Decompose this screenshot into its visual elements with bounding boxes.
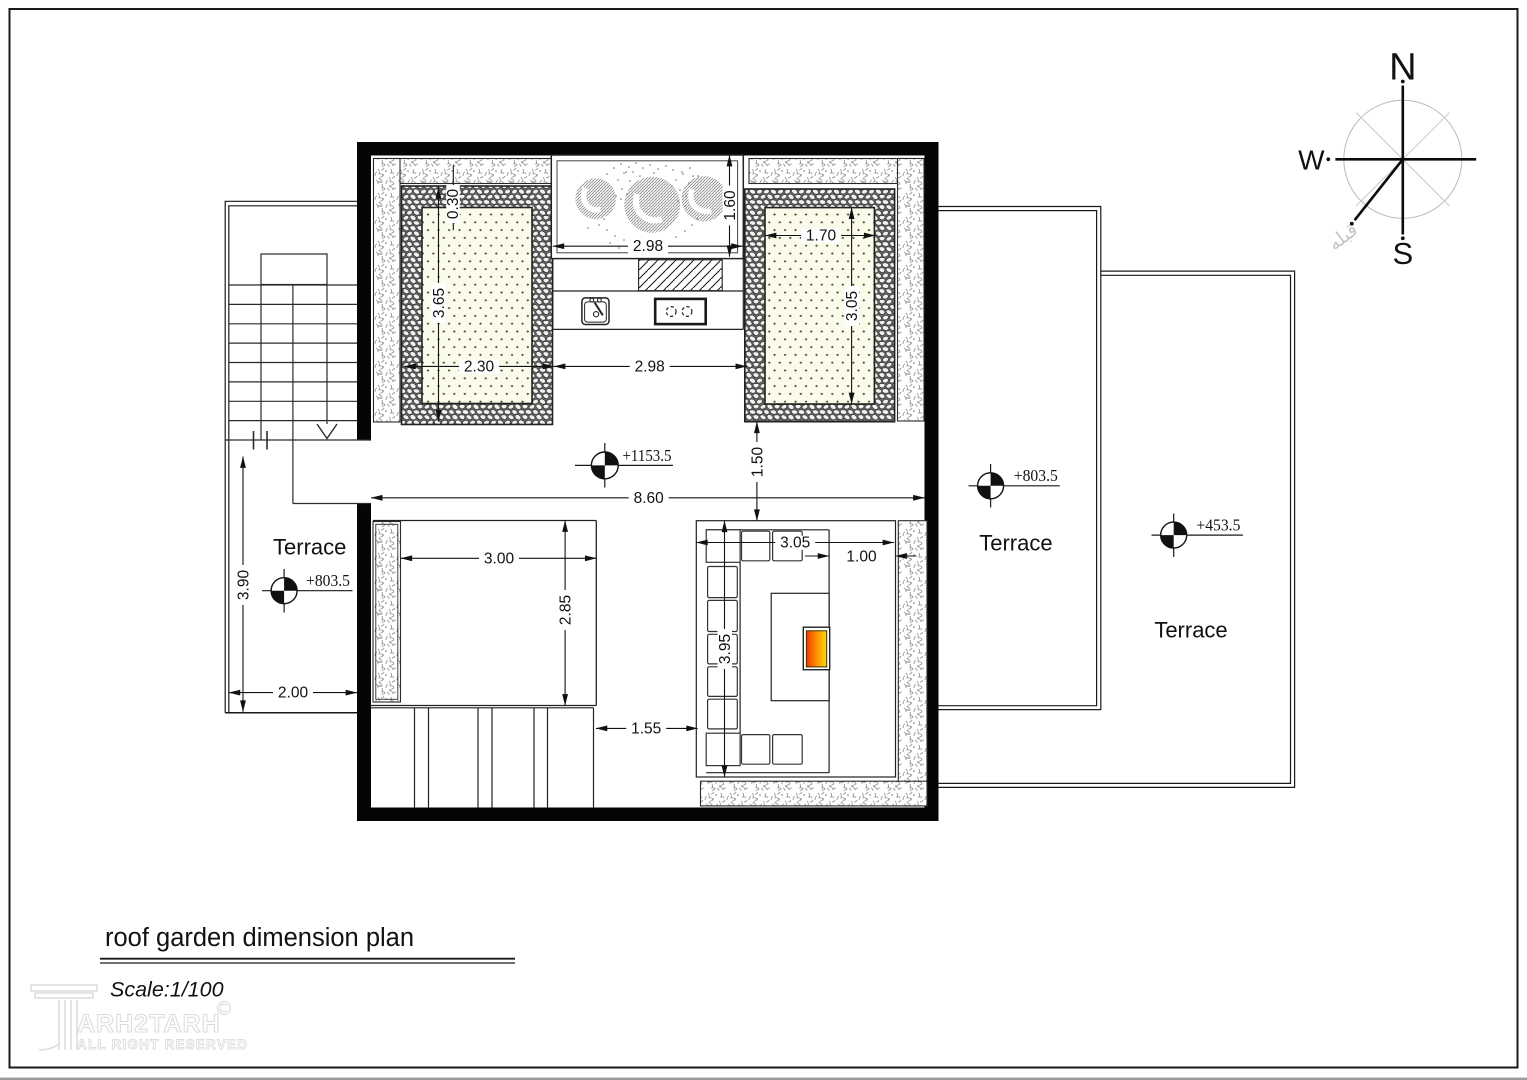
svg-text:Terrace: Terrace (1154, 618, 1227, 643)
svg-text:+1153.5: +1153.5 (623, 446, 672, 465)
svg-text:2.98: 2.98 (635, 358, 665, 375)
svg-text:3.65: 3.65 (431, 288, 448, 318)
svg-text:+803.5: +803.5 (306, 571, 350, 590)
svg-text:3.05: 3.05 (780, 535, 810, 552)
svg-text:ARH2TARH: ARH2TARH (77, 1010, 221, 1038)
svg-text:2.00: 2.00 (278, 685, 309, 702)
svg-text:2.30: 2.30 (464, 358, 495, 375)
svg-text:N: N (1389, 47, 1416, 89)
svg-text:3.90: 3.90 (236, 570, 253, 601)
svg-text:ALL RIGHT RESERVED: ALL RIGHT RESERVED (77, 1037, 248, 1052)
svg-text:3.95: 3.95 (717, 634, 734, 664)
svg-text:8.60: 8.60 (634, 490, 665, 507)
svg-text:1.00: 1.00 (846, 549, 877, 566)
svg-text:2.85: 2.85 (558, 595, 575, 625)
svg-text:1.70: 1.70 (806, 228, 837, 245)
svg-text:2.98: 2.98 (633, 238, 663, 255)
svg-text:1.50: 1.50 (749, 447, 766, 478)
svg-text:Scale:1/100: Scale:1/100 (110, 978, 224, 1002)
svg-text:1.60: 1.60 (722, 190, 739, 221)
svg-text:S: S (1392, 236, 1413, 271)
svg-text:roof garden dimension plan: roof garden dimension plan (105, 924, 414, 952)
svg-text:W: W (1298, 145, 1325, 176)
svg-text:1.55: 1.55 (631, 720, 661, 737)
svg-text:+453.5: +453.5 (1196, 516, 1240, 535)
svg-text:3.00: 3.00 (484, 550, 515, 567)
svg-text:0.30: 0.30 (445, 189, 462, 220)
svg-text:+803.5: +803.5 (1014, 466, 1058, 485)
svg-text:Terrace: Terrace (979, 531, 1052, 556)
svg-text:Terrace: Terrace (273, 535, 346, 560)
svg-text:3.05: 3.05 (844, 291, 861, 321)
